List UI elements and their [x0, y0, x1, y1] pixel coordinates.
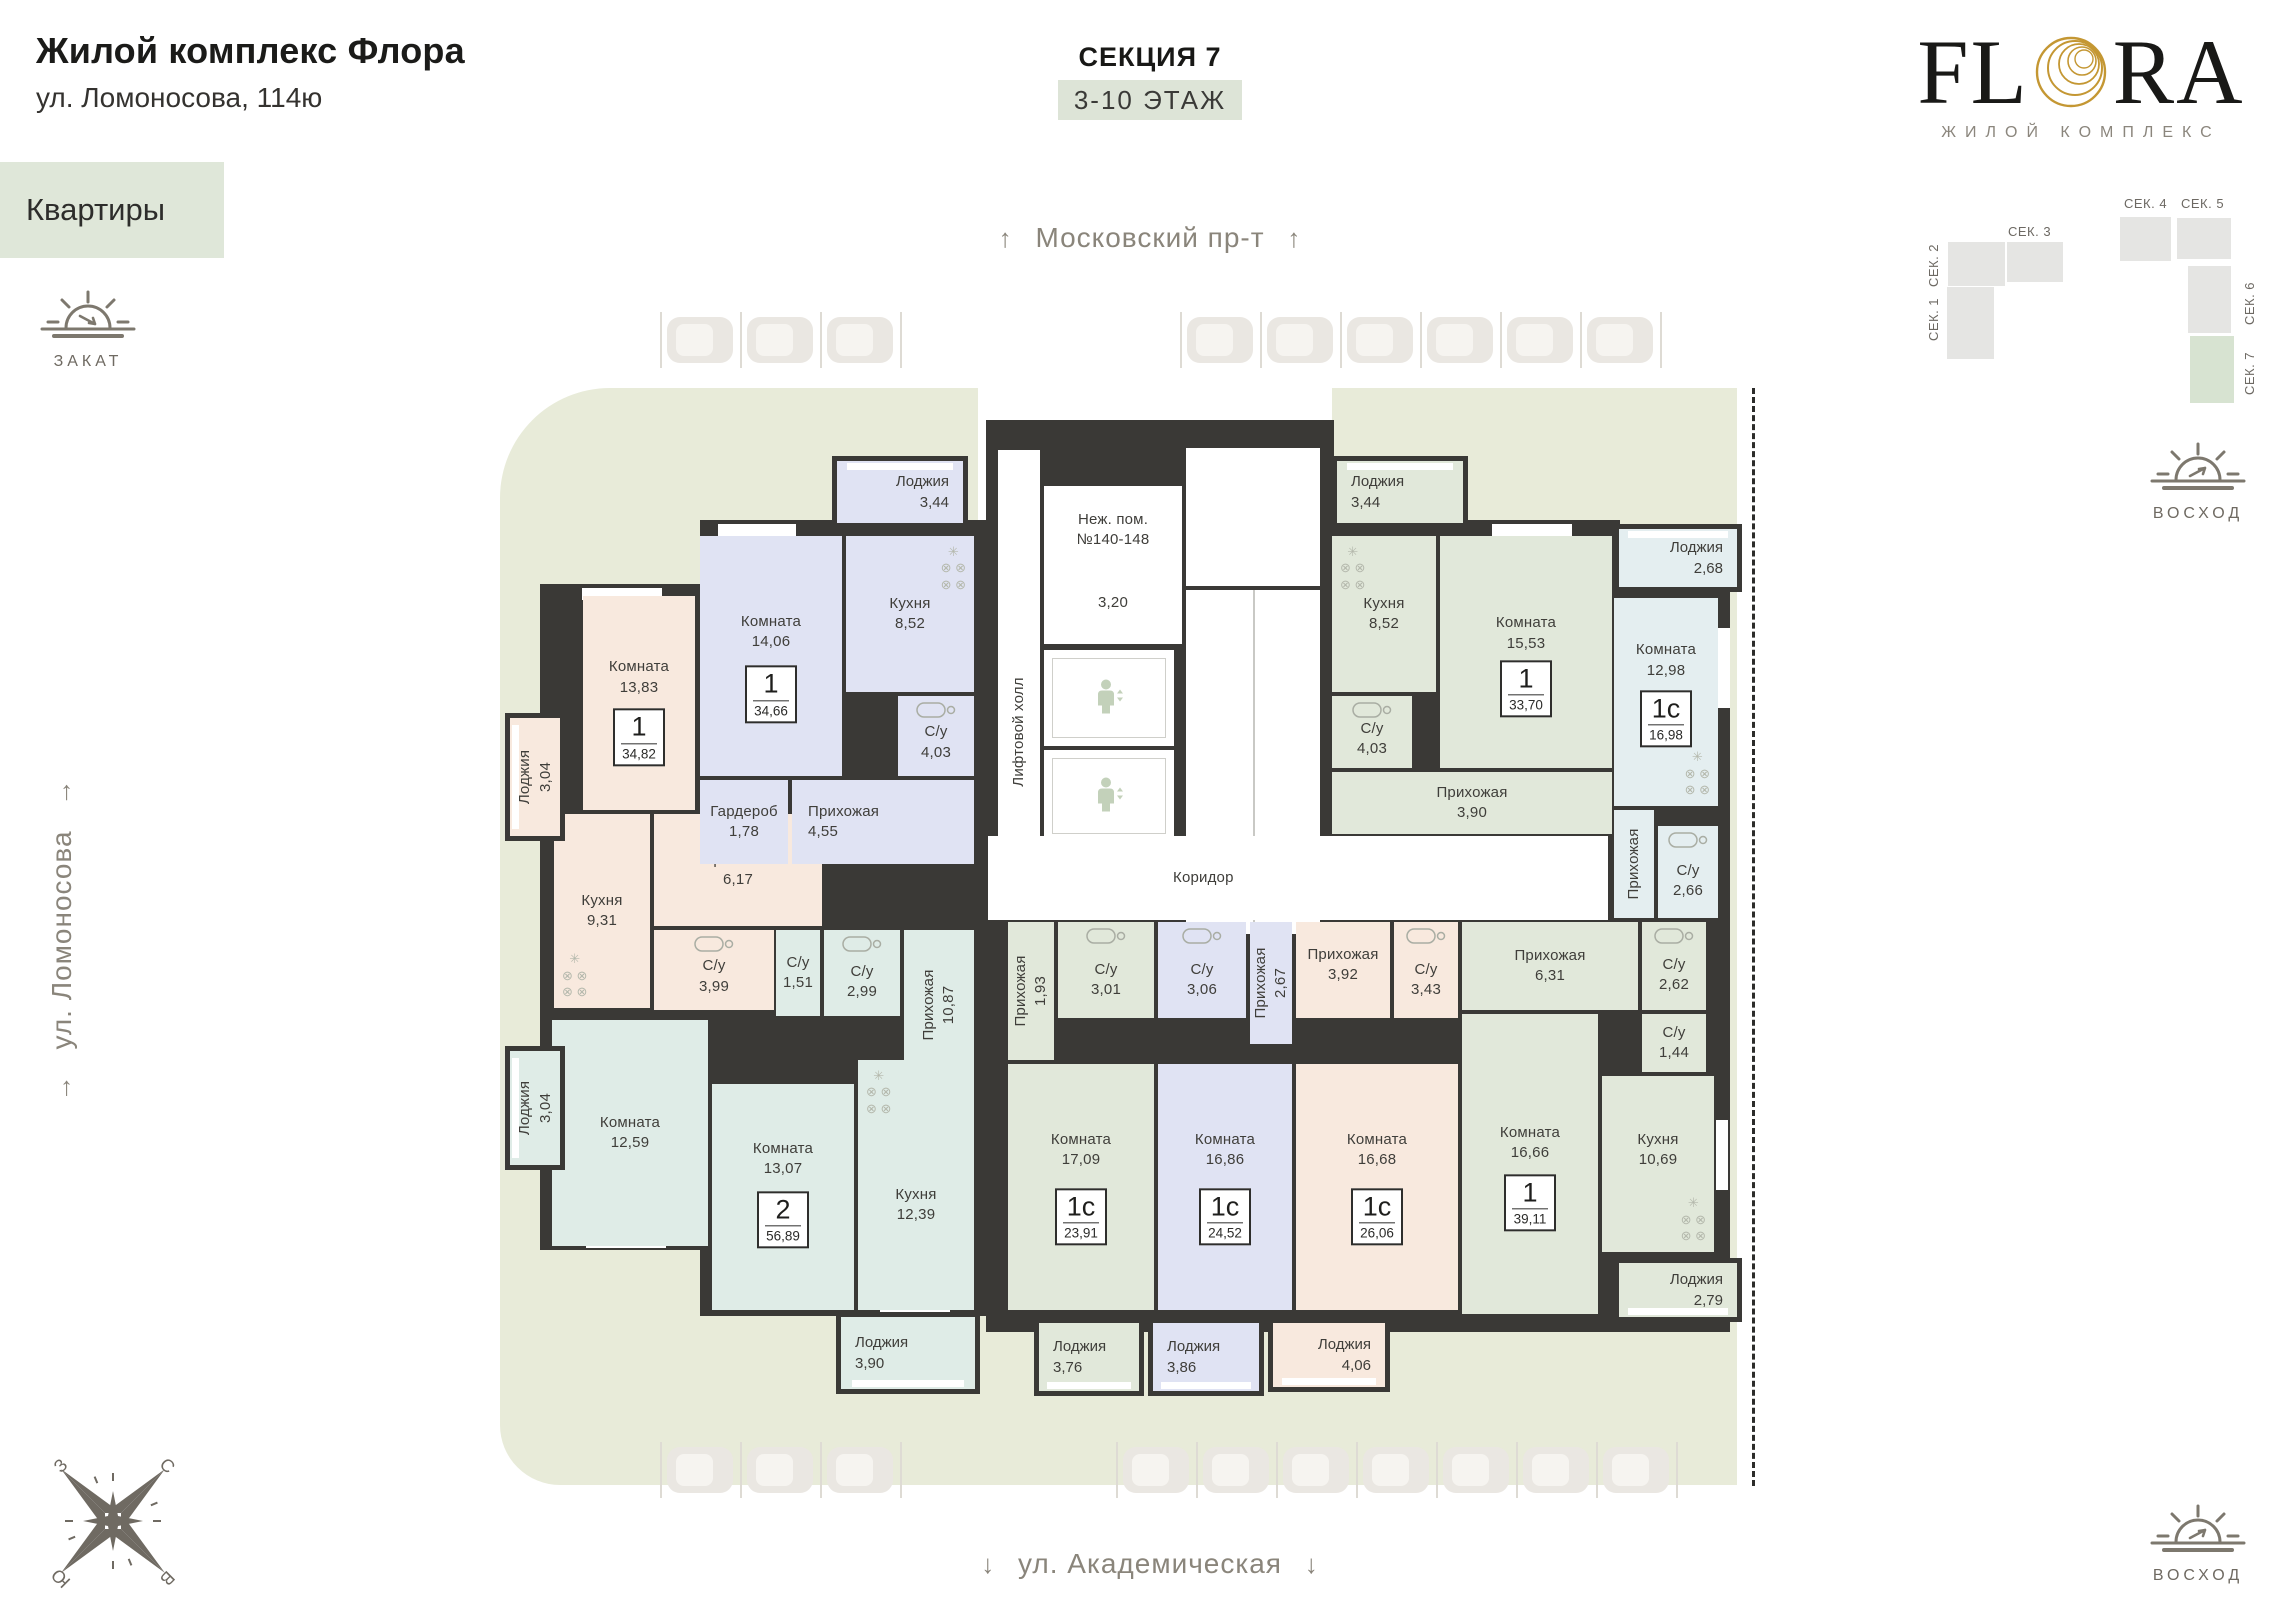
car-roof — [836, 324, 872, 356]
window — [1492, 524, 1572, 536]
car-icon — [1587, 317, 1653, 363]
parking-slot-divider — [1356, 1442, 1358, 1498]
car-icon — [1427, 317, 1493, 363]
room-label-komnata-16-86: Комната16,86 — [1195, 1130, 1255, 1171]
room-su-4-03b: С/у4,03 — [1332, 696, 1412, 768]
loggia-label-loggia-4-06: Лоджия4,06 — [1318, 1334, 1371, 1376]
badge-area: 34,82 — [621, 743, 657, 761]
parking-slot-divider — [1196, 1442, 1198, 1498]
car-icon — [1123, 1447, 1189, 1493]
apartment-badge-komnata-13-07[interactable]: 256,89 — [757, 1191, 809, 1248]
room-kuhnya-9-31: Кухня9,31✳⊗ ⊗⊗ ⊗ — [554, 814, 650, 1008]
car-roof — [756, 1454, 792, 1486]
room-label-su-1-51: С/у1,51 — [783, 953, 813, 994]
elevator-person-icon — [1092, 676, 1126, 721]
room-prihozhaya-3-90: Прихожая3,90 — [1332, 772, 1612, 834]
parking-slot-divider — [900, 312, 902, 368]
room-komnata-12-59: Комната12,59 — [552, 1020, 708, 1246]
room-area-nezh-pom: 3,20 — [1098, 593, 1128, 613]
room-label-komnata-16-68: Комната16,68 — [1347, 1130, 1407, 1171]
loggia-label-loggia-3-44a: Лоджия3,44 — [896, 471, 949, 513]
car-icon — [1443, 1447, 1509, 1493]
car-icon — [827, 317, 893, 363]
apartment-badge-komnata-15-53[interactable]: 133,70 — [1500, 660, 1552, 717]
car-roof — [1212, 1454, 1248, 1486]
car-icon — [747, 1447, 813, 1493]
car-roof — [756, 324, 792, 356]
badge-area: 56,89 — [765, 1225, 801, 1243]
room-label-prihozhaya-10-87: Прихожая10,87 — [919, 969, 960, 1040]
badge-rooms: 1 — [615, 713, 663, 741]
parking-slot-divider — [660, 312, 662, 368]
room-label-su-4-03a: С/у4,03 — [921, 722, 951, 763]
room-kuhnya-10-69: Кухня10,69✳⊗ ⊗⊗ ⊗ — [1602, 1076, 1714, 1252]
room-label-garderob-1-78: Гардероб1,78 — [710, 802, 778, 843]
apartment-badge-komnata-17-09[interactable]: 1с23,91 — [1055, 1188, 1107, 1245]
room-label-prihozhaya-4-55: Прихожая4,55 — [808, 802, 879, 843]
car-icon — [1363, 1447, 1429, 1493]
room-label-corridor: Коридор — [1173, 868, 1234, 888]
room-su-3-06: С/у3,06 — [1158, 922, 1246, 1018]
car-roof — [1372, 1454, 1408, 1486]
parking-slot-divider — [1676, 1442, 1678, 1498]
room-label-kuhnya-8-52b: Кухня8,52 — [1363, 594, 1404, 635]
room-label-kuhnya-9-31: Кухня9,31 — [581, 891, 622, 932]
bath-fixture-icon — [694, 936, 734, 961]
parking-slot-divider — [1420, 312, 1422, 368]
loggia-loggia-3-76: Лоджия3,76 — [1034, 1318, 1144, 1396]
bath-fixture-icon — [842, 936, 882, 961]
room-prihozhaya-10-87: Прихожая10,87 — [904, 930, 974, 1080]
loggia-label-loggia-3-76: Лоджия3,76 — [1053, 1336, 1106, 1378]
bath-fixture-icon — [916, 702, 956, 727]
parking-slot-divider — [1660, 312, 1662, 368]
loggia-window — [1161, 1382, 1250, 1389]
room-label-prihozhaya-2-67: Прихожая2,67 — [1251, 947, 1292, 1018]
room-su-3-01: С/у3,01 — [1058, 922, 1154, 1018]
car-roof — [1436, 324, 1472, 356]
room-prihozhaya-v: Прихожая — [1614, 810, 1654, 918]
badge-rooms: 1с — [1353, 1192, 1401, 1220]
car-icon — [747, 317, 813, 363]
car-roof — [1356, 324, 1392, 356]
car-roof — [1612, 1454, 1648, 1486]
bath-fixture-icon — [1182, 928, 1222, 953]
room-label-kuhnya-10-69: Кухня10,69 — [1637, 1130, 1678, 1171]
car-roof — [1516, 324, 1552, 356]
room-komnata-16-66: Комната16,66139,11 — [1462, 1014, 1598, 1314]
loggia-loggia-2-79: Лоджия2,79 — [1614, 1258, 1742, 1322]
parking-slot-divider — [1516, 1442, 1518, 1498]
room-label-komnata-14-06: Комната14,06 — [741, 612, 801, 653]
car-icon — [1523, 1447, 1589, 1493]
room-label-su-2-66: С/у2,66 — [1673, 861, 1703, 902]
room-label-su-2-99: С/у2,99 — [847, 961, 877, 1002]
room-elevator-b — [1044, 750, 1174, 842]
room-kuhnya-12-39: Кухня12,39✳⊗ ⊗⊗ ⊗ — [858, 1060, 974, 1310]
kitchen-fixtures-icon: ✳⊗ ⊗⊗ ⊗ — [1685, 749, 1710, 798]
parking-slot-divider — [1340, 312, 1342, 368]
room-elevator-a — [1044, 650, 1174, 746]
room-label-komnata-15-53: Комната15,53 — [1496, 613, 1556, 654]
badge-area: 33,70 — [1508, 695, 1544, 713]
badge-rooms: 1 — [1506, 1178, 1554, 1206]
parking-slot-divider — [1180, 312, 1182, 368]
loggia-window — [847, 463, 953, 470]
room-label-su-3-99: С/у3,99 — [699, 956, 729, 997]
loggia-window — [1047, 1382, 1131, 1389]
room-su-1-51: С/у1,51 — [776, 930, 820, 1016]
bath-fixture-icon — [1406, 928, 1446, 953]
room-label-prihozhaya-1-93: Прихожая1,93 — [1011, 955, 1052, 1026]
loggia-loggia-3-44a: Лоджия3,44 — [832, 456, 968, 528]
kitchen-fixtures-icon: ✳⊗ ⊗⊗ ⊗ — [1681, 1195, 1706, 1244]
loggia-loggia-3-86: Лоджия3,86 — [1148, 1318, 1264, 1396]
car-icon — [667, 317, 733, 363]
badge-rooms: 1с — [1201, 1192, 1249, 1220]
loggia-loggia-3-04a: Лоджия3,04 — [505, 713, 565, 841]
car-icon — [1347, 317, 1413, 363]
room-label-kuhnya-12-39: Кухня12,39 — [895, 1185, 936, 1226]
kitchen-fixtures-icon: ✳⊗ ⊗⊗ ⊗ — [866, 1068, 891, 1117]
room-su-2-66: С/у2,66 — [1658, 826, 1718, 918]
loggia-loggia-4-06: Лоджия4,06 — [1268, 1318, 1390, 1392]
elevator-person-icon — [1092, 774, 1126, 819]
room-komnata-13-83: Комната13,83134,82 — [583, 596, 695, 810]
room-nezh-pom: Неж. пом.№140-1483,20 — [1044, 486, 1182, 644]
room-prihozhaya-6-31: Прихожая6,31 — [1462, 922, 1638, 1010]
room-label-komnata-13-07: Комната13,07 — [753, 1138, 813, 1179]
room-label-prihozhaya-3-90: Прихожая3,90 — [1436, 783, 1507, 824]
parking-slot-divider — [660, 1442, 662, 1498]
parking-slot-divider — [740, 312, 742, 368]
car-icon — [1203, 1447, 1269, 1493]
badge-rooms: 2 — [759, 1195, 807, 1223]
apartment-badge-komnata-16-66[interactable]: 139,11 — [1504, 1174, 1556, 1231]
apartment-badge-komnata-12-98[interactable]: 1с16,98 — [1640, 690, 1692, 747]
room-label-komnata-16-66: Комната16,66 — [1500, 1123, 1560, 1164]
parking-slot-divider — [1500, 312, 1502, 368]
loggia-label-loggia-2-68: Лоджия2,68 — [1670, 537, 1723, 579]
room-prihozhaya-1-93: Прихожая1,93 — [1008, 922, 1054, 1060]
room-su-2-99: С/у2,99 — [824, 930, 900, 1016]
room-stairs-landing — [1186, 448, 1320, 586]
car-roof — [1452, 1454, 1488, 1486]
loggia-loggia-3-44b: Лоджия3,44 — [1332, 456, 1468, 528]
room-corridor: Коридор — [988, 836, 1608, 920]
badge-area: 23,91 — [1063, 1222, 1099, 1240]
car-roof — [1132, 1454, 1168, 1486]
kitchen-fixtures-icon: ✳⊗ ⊗⊗ ⊗ — [941, 544, 966, 593]
room-su-3-99: С/у3,99 — [654, 930, 774, 1010]
room-komnata-16-86: Комната16,861с24,52 — [1158, 1064, 1292, 1310]
room-label-su-3-06: С/у3,06 — [1187, 959, 1217, 1000]
parking-slot-divider — [1436, 1442, 1438, 1498]
room-label-komnata-12-59: Комната12,59 — [600, 1113, 660, 1154]
car-icon — [1187, 317, 1253, 363]
room-label-lift-hall: Лифтовой холл — [1009, 677, 1029, 786]
bath-fixture-icon — [1668, 832, 1708, 857]
car-icon — [827, 1447, 893, 1493]
loggia-window — [1347, 463, 1453, 470]
loggia-loggia-3-04b: Лоджия3,04 — [505, 1046, 565, 1170]
car-roof — [1596, 324, 1632, 356]
parking-slot-divider — [1276, 1442, 1278, 1498]
window — [718, 524, 796, 536]
room-label-su-2-62: С/у2,62 — [1659, 955, 1689, 996]
site-boundary-line — [1752, 388, 1755, 1486]
loggia-label-loggia-3-90: Лоджия3,90 — [855, 1332, 908, 1374]
parking-slot-divider — [1596, 1442, 1598, 1498]
loggia-label-loggia-3-04a: Лоджия3,04 — [514, 750, 556, 804]
room-su-3-43: С/у3,43 — [1394, 922, 1458, 1018]
apartment-badge-komnata-16-86[interactable]: 1с24,52 — [1199, 1188, 1251, 1245]
room-label-prihozhaya-v: Прихожая — [1624, 828, 1644, 899]
kitchen-fixtures-icon: ✳⊗ ⊗⊗ ⊗ — [1340, 544, 1365, 593]
badge-area: 34,66 — [753, 700, 789, 718]
room-label-su-3-43: С/у3,43 — [1411, 959, 1441, 1000]
badge-rooms: 1 — [1502, 664, 1550, 692]
car-icon — [1603, 1447, 1669, 1493]
room-label-kuhnya-8-52a: Кухня8,52 — [889, 594, 930, 635]
parking-slot-divider — [820, 1442, 822, 1498]
badge-area: 39,11 — [1512, 1209, 1548, 1227]
car-roof — [676, 1454, 712, 1486]
room-su-2-62: С/у2,62 — [1642, 922, 1706, 1010]
car-icon — [1507, 317, 1573, 363]
loggia-loggia-2-68: Лоджия2,68 — [1614, 524, 1742, 592]
apartment-badge-komnata-14-06[interactable]: 134,66 — [745, 666, 797, 723]
car-roof — [1276, 324, 1312, 356]
floor-plan: Комната13,83134,82Кухня9,31✳⊗ ⊗⊗ ⊗Прихож… — [0, 0, 2294, 1620]
bath-fixture-icon — [1352, 702, 1392, 727]
room-label-komnata-17-09: Комната17,09 — [1051, 1130, 1111, 1171]
badge-rooms: 1с — [1057, 1192, 1105, 1220]
badge-area: 16,98 — [1648, 724, 1684, 742]
room-label-komnata-12-98: Комната12,98 — [1636, 640, 1696, 681]
car-roof — [1292, 1454, 1328, 1486]
car-icon — [1283, 1447, 1349, 1493]
room-label-prihozhaya-6-31: Прихожая6,31 — [1514, 946, 1585, 987]
window — [1716, 1120, 1728, 1190]
badge-area: 26,06 — [1359, 1222, 1395, 1240]
loggia-label-loggia-3-04b: Лоджия3,04 — [514, 1081, 556, 1135]
room-komnata-15-53: Комната15,53133,70 — [1440, 536, 1612, 768]
room-garderob-1-78: Гардероб1,78 — [700, 780, 788, 864]
car-icon — [667, 1447, 733, 1493]
window — [1718, 628, 1730, 708]
room-kuhnya-8-52b: Кухня8,52✳⊗ ⊗⊗ ⊗ — [1332, 536, 1436, 692]
room-komnata-13-07: Комната13,07256,89 — [712, 1084, 854, 1310]
car-roof — [1196, 324, 1232, 356]
loggia-window — [852, 1380, 965, 1387]
apartment-badge-komnata-13-83[interactable]: 134,82 — [613, 709, 665, 766]
car-roof — [836, 1454, 872, 1486]
loggia-loggia-3-90: Лоджия3,90 — [836, 1312, 980, 1394]
loggia-window — [1282, 1378, 1376, 1385]
apartment-badge-komnata-16-68[interactable]: 1с26,06 — [1351, 1188, 1403, 1245]
room-komnata-16-68: Комната16,681с26,06 — [1296, 1064, 1458, 1310]
car-roof — [676, 324, 712, 356]
parking-slot-divider — [1116, 1442, 1118, 1498]
car-roof — [1532, 1454, 1568, 1486]
bath-fixture-icon — [1654, 928, 1694, 953]
bath-fixture-icon — [1086, 928, 1126, 953]
room-komnata-14-06: Комната14,06134,66 — [700, 536, 842, 776]
room-su-1-44: С/у1,44 — [1642, 1014, 1706, 1072]
room-prihozhaya-3-92: Прихожая3,92 — [1296, 922, 1390, 1018]
room-label-su-1-44: С/у1,44 — [1659, 1023, 1689, 1064]
room-prihozhaya-2-67: Прихожая2,67 — [1250, 922, 1292, 1044]
room-su-4-03a: С/у4,03 — [898, 696, 974, 776]
parking-slot-divider — [900, 1442, 902, 1498]
parking-slot-divider — [1260, 312, 1262, 368]
car-icon — [1267, 317, 1333, 363]
loggia-label-loggia-2-79: Лоджия2,79 — [1670, 1269, 1723, 1311]
parking-slot-divider — [820, 312, 822, 368]
badge-rooms: 1с — [1642, 694, 1690, 722]
room-label-komnata-13-83: Комната13,83 — [609, 657, 669, 698]
parking-slot-divider — [1580, 312, 1582, 368]
loggia-label-loggia-3-86: Лоджия3,86 — [1167, 1336, 1220, 1378]
kitchen-fixtures-icon: ✳⊗ ⊗⊗ ⊗ — [562, 951, 587, 1000]
room-komnata-17-09: Комната17,091с23,91 — [1008, 1064, 1154, 1310]
room-prihozhaya-4-55: Прихожая4,55 — [792, 780, 974, 864]
room-label-su-3-01: С/у3,01 — [1091, 959, 1121, 1000]
loggia-label-loggia-3-44b: Лоджия3,44 — [1351, 471, 1404, 513]
room-label-prihozhaya-3-92: Прихожая3,92 — [1307, 945, 1378, 986]
room-label-nezh-pom: Неж. пом.№140-148 — [1077, 510, 1150, 551]
room-kuhnya-8-52a: Кухня8,52✳⊗ ⊗⊗ ⊗ — [846, 536, 974, 692]
badge-area: 24,52 — [1207, 1222, 1243, 1240]
badge-rooms: 1 — [747, 670, 795, 698]
room-komnata-12-98: Комната12,981с16,98✳⊗ ⊗⊗ ⊗ — [1614, 598, 1718, 806]
parking-slot-divider — [740, 1442, 742, 1498]
